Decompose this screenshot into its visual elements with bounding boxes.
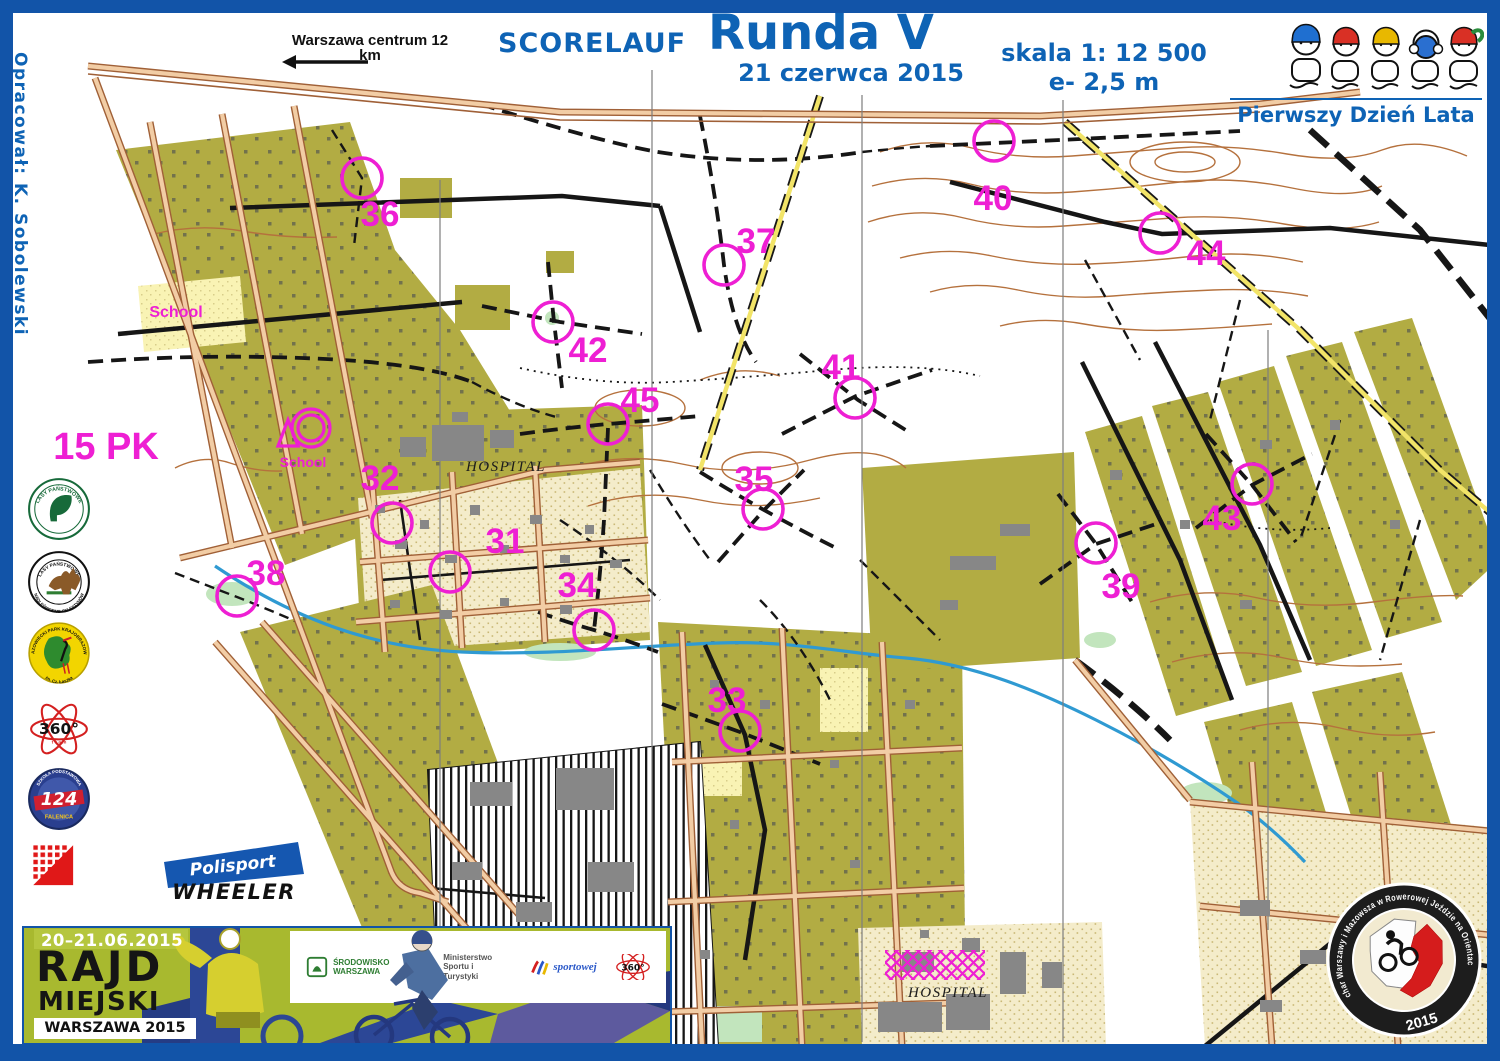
banner-360-icon: 360° [615, 954, 651, 980]
orienteering-club-logo [26, 838, 84, 896]
rajd-miejski-banner: ŚRODOWISKO WARSZAWA Ministerstwo Sportu … [22, 926, 672, 1045]
control-number-32: 32 [361, 459, 400, 498]
swimming-kids-illustration [1288, 6, 1484, 92]
control-number-39: 39 [1102, 567, 1141, 606]
map-scale: skala 1: 12 500 [995, 41, 1213, 66]
svg-text:360°: 360° [39, 720, 79, 738]
control-number-35: 35 [735, 460, 774, 499]
banner-360-logo: 360° [615, 954, 651, 980]
map-label: SZPITAL CENTRUM ZDROWIA DZIECKA [856, 1045, 1124, 1060]
banner-partner-strip: ŚRODOWISKO WARSZAWA Ministerstwo Sportu … [290, 931, 666, 1003]
control-number-45: 45 [621, 381, 660, 420]
nadlesnictwo-celestynow-logo: LASY PAŃSTWOWE NADLEŚNICTWO CELESTYNÓW [26, 549, 92, 615]
svg-text:360°: 360° [621, 964, 644, 974]
direction-note: Warszawa centrum 12 km [280, 33, 460, 63]
map-label: School [149, 304, 202, 321]
orienteering-map-poster: { "frame": {"border_color": "#1254a8", "… [0, 0, 1500, 1061]
control-number-41: 41 [822, 348, 861, 387]
sp-124-falenica-logo: SZKOŁA PODSTAWOWA 124 FALENICA [26, 766, 92, 832]
event-type-label: SCORELAUF [498, 30, 676, 58]
mazowiecki-park-logo: MAZOWIECKI PARK KRAJOBRAZOWY im. Cz. Łas… [26, 620, 92, 686]
svg-text:124: 124 [41, 790, 78, 810]
map-equidistance: e- 2,5 m [995, 70, 1213, 95]
banner-subtitle: WARSZAWA 2015 [34, 1018, 196, 1039]
control-number-31: 31 [486, 522, 525, 561]
season-note: Pierwszy Dzień Lata [1230, 98, 1482, 126]
control-number-40: 40 [974, 179, 1013, 218]
map-label: 15 PK [53, 426, 159, 468]
wheeler-wordmark: WHEELER [172, 880, 296, 904]
map-label: HOSPITAL [907, 985, 988, 1001]
out-of-bounds-area [885, 950, 985, 980]
control-number-37: 37 [737, 222, 776, 261]
lasy-panstwowe-logo: LASY PAŃSTWOWE [26, 476, 92, 542]
360-team-logo: 360° t e a m [26, 694, 92, 760]
author-credit: Opracował: K. Sobolewski [10, 52, 30, 336]
polisport-wheeler-logo: Polisport WHEELER [158, 838, 310, 904]
control-number-42: 42 [569, 331, 608, 370]
banner-title-2: MIEJSKI [38, 989, 160, 1015]
map-label: School [280, 454, 327, 470]
banner-title-1: RAJD [36, 946, 163, 988]
control-number-38: 38 [247, 554, 286, 593]
puchar-badge: Puchar Warszawy i Mazowsza w Rowerowej J… [1322, 874, 1486, 1046]
srodowisko-warszawa-logo: ŚRODOWISKO WARSZAWA [305, 955, 399, 979]
control-number-33: 33 [708, 681, 747, 720]
ministerstwo-sportu-logo: Ministerstwo Sportu i Turystyki [417, 953, 509, 981]
map-label: HOSPITAL [465, 459, 546, 475]
page-title: Runda V [690, 8, 952, 58]
control-number-44: 44 [1187, 234, 1226, 273]
svg-text:FALENICA: FALENICA [45, 815, 73, 821]
sportowej-icon [527, 956, 549, 978]
control-number-36: 36 [361, 195, 400, 234]
control-number-43: 43 [1203, 499, 1242, 538]
svg-text:t e a m: t e a m [52, 740, 67, 745]
control-number-34: 34 [558, 566, 597, 605]
ministerstwo-icon [417, 956, 439, 978]
sportowej-logo: sportowej [527, 956, 596, 978]
event-date: 21 czerwca 2015 [735, 61, 967, 86]
srodowisko-icon [305, 955, 329, 979]
